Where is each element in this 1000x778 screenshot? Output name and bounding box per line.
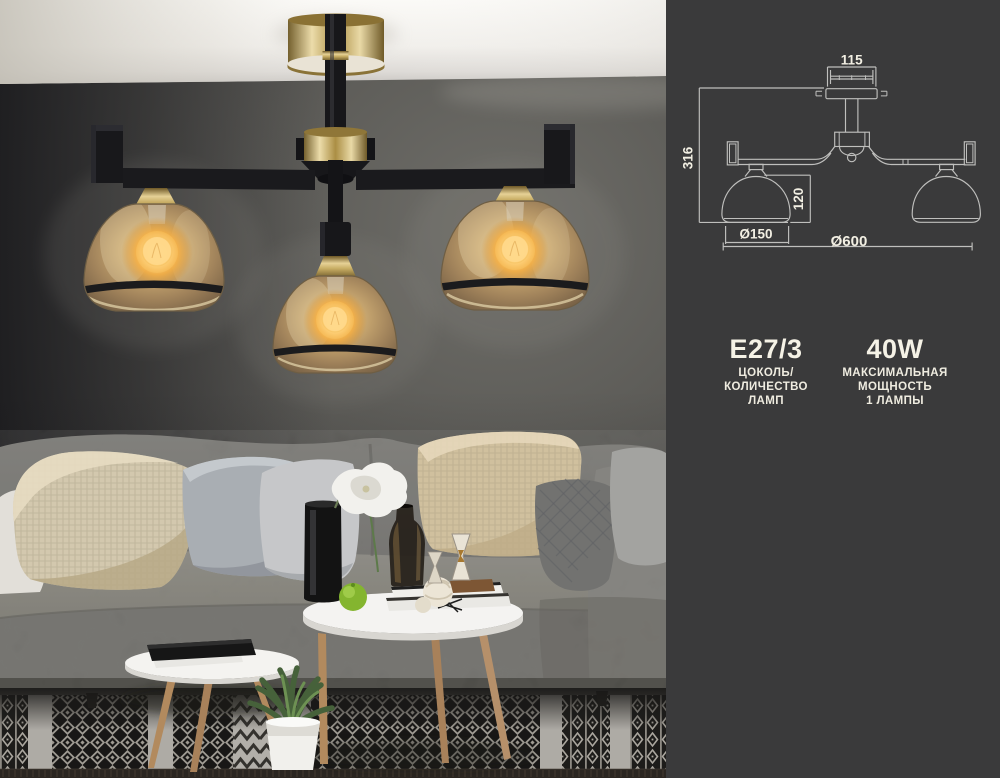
svg-text:115: 115: [841, 53, 863, 68]
svg-text:120: 120: [791, 188, 806, 211]
svg-text:Ø600: Ø600: [831, 233, 868, 250]
svg-text:316: 316: [681, 146, 696, 169]
svg-text:Ø150: Ø150: [739, 227, 772, 242]
